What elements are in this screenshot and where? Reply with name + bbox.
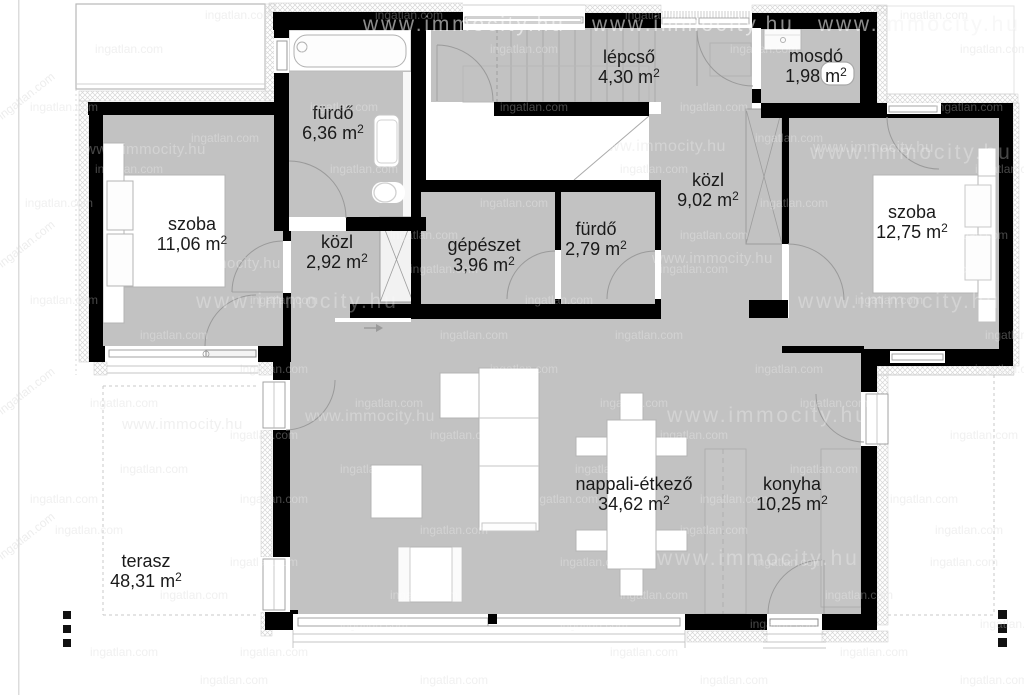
svg-text:ingatlan.com: ingatlan.com bbox=[940, 228, 1008, 242]
svg-text:ingatlan.com: ingatlan.com bbox=[600, 396, 668, 410]
svg-text:ingatlan.com: ingatlan.com bbox=[700, 673, 768, 687]
svg-text:ingatlan.com: ingatlan.com bbox=[985, 328, 1024, 342]
svg-text:ingatlan.com: ingatlan.com bbox=[420, 523, 488, 537]
svg-text:9,02 m2: 9,02 m2 bbox=[677, 189, 739, 210]
svg-text:ingatlan.com: ingatlan.com bbox=[615, 328, 683, 342]
svg-text:ingatlan.com: ingatlan.com bbox=[480, 196, 548, 210]
svg-text:ingatlan.com: ingatlan.com bbox=[90, 396, 158, 410]
svg-text:ingatlan.com: ingatlan.com bbox=[890, 492, 958, 506]
svg-text:ingatlan.com: ingatlan.com bbox=[700, 492, 768, 506]
svg-text:www.immocity.hu: www.immocity.hu bbox=[121, 416, 243, 433]
svg-text:ingatlan.com: ingatlan.com bbox=[975, 162, 1024, 176]
svg-text:ingatlan.com: ingatlan.com bbox=[730, 42, 798, 56]
svg-text:ingatlan.com: ingatlan.com bbox=[560, 617, 628, 631]
svg-text:1,98 m2: 1,98 m2 bbox=[785, 65, 847, 86]
svg-text:közl: közl bbox=[321, 232, 353, 252]
svg-text:ingatlan.com: ingatlan.com bbox=[610, 645, 678, 659]
svg-text:ingatlan.com: ingatlan.com bbox=[140, 228, 208, 242]
svg-text:ingatlan.com: ingatlan.com bbox=[500, 100, 568, 114]
svg-text:12,75 m2: 12,75 m2 bbox=[876, 221, 948, 242]
svg-text:www.immocity.hu: www.immocity.hu bbox=[84, 141, 206, 158]
svg-text:terasz: terasz bbox=[121, 551, 170, 571]
svg-text:www.immocity.hu: www.immocity.hu bbox=[195, 290, 399, 313]
svg-text:ingatlan.com: ingatlan.com bbox=[525, 293, 593, 307]
svg-text:ingatlan.com: ingatlan.com bbox=[390, 228, 458, 242]
svg-text:www.immocity.hu: www.immocity.hu bbox=[817, 13, 1021, 36]
svg-text:ingatlan.com: ingatlan.com bbox=[120, 462, 188, 476]
svg-text:ingatlan.com: ingatlan.com bbox=[140, 328, 208, 342]
svg-text:ingatlan.com: ingatlan.com bbox=[790, 462, 858, 476]
svg-text:www.immocity.hu: www.immocity.hu bbox=[304, 408, 435, 425]
svg-text:www.immocity.hu: www.immocity.hu bbox=[595, 138, 726, 155]
svg-text:ingatlan.com: ingatlan.com bbox=[30, 293, 98, 307]
svg-text:lépcső: lépcső bbox=[603, 47, 655, 67]
svg-text:ingatlan.com: ingatlan.com bbox=[575, 462, 643, 476]
svg-text:ingatlan.com: ingatlan.com bbox=[755, 362, 823, 376]
svg-text:ingatlan.com: ingatlan.com bbox=[680, 228, 748, 242]
svg-text:www.immocity.hu: www.immocity.hu bbox=[362, 13, 566, 36]
svg-text:ingatlan.com: ingatlan.com bbox=[240, 645, 308, 659]
svg-text:ingatlan.com: ingatlan.com bbox=[760, 196, 828, 210]
svg-text:ingatlan.com: ingatlan.com bbox=[90, 645, 158, 659]
svg-text:ingatlan.com: ingatlan.com bbox=[95, 42, 163, 56]
svg-text:ingatlan.com: ingatlan.com bbox=[230, 555, 298, 569]
svg-text:ingatlan.com: ingatlan.com bbox=[30, 492, 98, 506]
svg-text:ingatlan.com: ingatlan.com bbox=[930, 555, 998, 569]
svg-text:4,30 m2: 4,30 m2 bbox=[598, 66, 660, 87]
svg-text:ingatlan.com: ingatlan.com bbox=[750, 617, 818, 631]
svg-text:ingatlan.com: ingatlan.com bbox=[935, 100, 1003, 114]
svg-text:www.immocity.hu: www.immocity.hu bbox=[159, 255, 281, 272]
svg-text:www.immocity.hu: www.immocity.hu bbox=[666, 404, 870, 427]
svg-text:ingatlan.com: ingatlan.com bbox=[200, 673, 268, 687]
svg-text:ingatlan.com: ingatlan.com bbox=[230, 428, 298, 442]
svg-text:ingatlan.com: ingatlan.com bbox=[950, 428, 1018, 442]
svg-text:gépészet: gépészet bbox=[447, 235, 520, 255]
svg-text:ingatlan.com: ingatlan.com bbox=[420, 673, 488, 687]
svg-text:fürdő: fürdő bbox=[575, 219, 616, 239]
svg-text:ingatlan.com: ingatlan.com bbox=[680, 100, 748, 114]
svg-text:ingatlan.com: ingatlan.com bbox=[915, 262, 983, 276]
svg-text:www.immocity.hu: www.immocity.hu bbox=[591, 13, 795, 36]
svg-text:ingatlan.com: ingatlan.com bbox=[440, 328, 508, 342]
svg-text:ingatlan.com: ingatlan.com bbox=[440, 131, 508, 145]
svg-text:ingatlan.com: ingatlan.com bbox=[960, 673, 1024, 687]
svg-text:ingatlan.com: ingatlan.com bbox=[960, 42, 1024, 56]
svg-text:szoba: szoba bbox=[888, 202, 937, 222]
svg-text:www.immocity.hu: www.immocity.hu bbox=[651, 250, 773, 267]
svg-text:2,79 m2: 2,79 m2 bbox=[565, 238, 627, 259]
svg-text:ingatlan.com: ingatlan.com bbox=[680, 523, 748, 537]
svg-text:ingatlan.com: ingatlan.com bbox=[55, 523, 123, 537]
svg-text:ingatlan.com: ingatlan.com bbox=[95, 162, 163, 176]
svg-text:ingatlan.com: ingatlan.com bbox=[240, 362, 308, 376]
svg-text:ingatlan.com: ingatlan.com bbox=[205, 8, 273, 22]
svg-text:ingatlan.com: ingatlan.com bbox=[340, 462, 408, 476]
svg-text:ingatlan.com: ingatlan.com bbox=[620, 588, 688, 602]
svg-text:ingatlan.com: ingatlan.com bbox=[975, 362, 1024, 376]
svg-text:ingatlan.com: ingatlan.com bbox=[340, 617, 408, 631]
svg-text:ingatlan.com: ingatlan.com bbox=[430, 428, 498, 442]
svg-text:34,62 m2: 34,62 m2 bbox=[598, 493, 670, 514]
svg-text:ingatlan.com: ingatlan.com bbox=[560, 555, 628, 569]
svg-text:2,92 m2: 2,92 m2 bbox=[306, 251, 368, 272]
svg-text:ingatlan.com: ingatlan.com bbox=[390, 588, 458, 602]
svg-text:ingatlan.com: ingatlan.com bbox=[620, 162, 688, 176]
svg-text:6,36 m2: 6,36 m2 bbox=[302, 122, 364, 143]
svg-text:ingatlan.com: ingatlan.com bbox=[530, 492, 598, 506]
svg-text:ingatlan.com: ingatlan.com bbox=[490, 42, 558, 56]
svg-text:www.immocity.hu: www.immocity.hu bbox=[797, 290, 1001, 313]
svg-text:ingatlan.com: ingatlan.com bbox=[30, 100, 98, 114]
svg-text:www.immocity.hu: www.immocity.hu bbox=[812, 139, 934, 156]
svg-text:ingatlan.com: ingatlan.com bbox=[25, 196, 93, 210]
svg-text:ingatlan.com: ingatlan.com bbox=[935, 523, 1003, 537]
svg-text:ingatlan.com: ingatlan.com bbox=[825, 588, 893, 602]
svg-text:ingatlan.com: ingatlan.com bbox=[410, 262, 478, 276]
svg-text:ingatlan.com: ingatlan.com bbox=[310, 100, 378, 114]
svg-text:ingatlan.com: ingatlan.com bbox=[330, 162, 398, 176]
svg-text:ingatlan.com: ingatlan.com bbox=[840, 645, 908, 659]
svg-text:www.immocity.hu: www.immocity.hu bbox=[656, 547, 860, 570]
svg-text:közl: közl bbox=[692, 170, 724, 190]
svg-text:ingatlan.com: ingatlan.com bbox=[300, 42, 368, 56]
svg-text:nappali-étkező: nappali-étkező bbox=[575, 474, 692, 494]
svg-text:ingatlan.com: ingatlan.com bbox=[980, 617, 1024, 631]
svg-text:ingatlan.com: ingatlan.com bbox=[490, 362, 558, 376]
svg-text:konyha: konyha bbox=[763, 474, 822, 494]
svg-text:ingatlan.com: ingatlan.com bbox=[160, 588, 228, 602]
svg-text:ingatlan.com: ingatlan.com bbox=[240, 492, 308, 506]
svg-text:ingatlan.com: ingatlan.com bbox=[660, 428, 728, 442]
